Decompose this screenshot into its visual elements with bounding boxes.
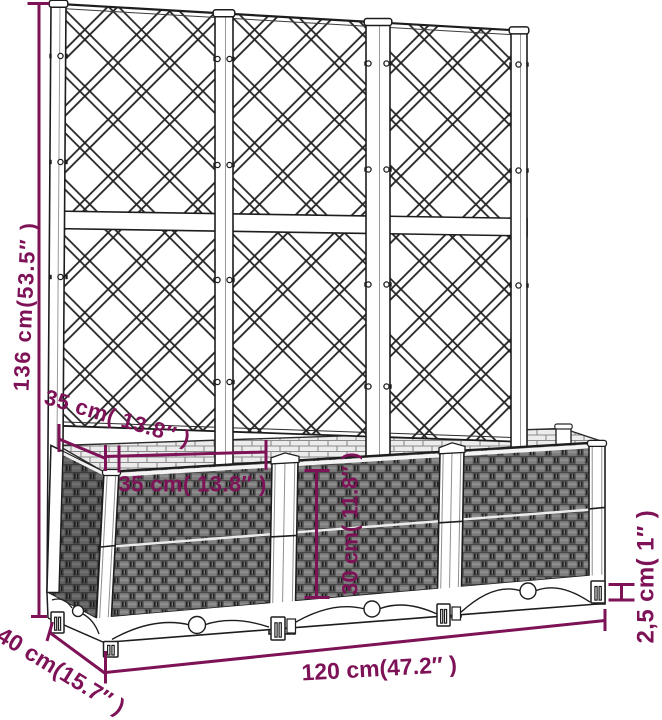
svg-text:30 cm( 11.8″ ): 30 cm( 11.8″ ) xyxy=(338,452,363,595)
svg-text:2,5 cm( 1″ ): 2,5 cm( 1″ ) xyxy=(633,510,660,644)
svg-text:35 cm( 13.8″ ): 35 cm( 13.8″ ) xyxy=(119,472,267,497)
